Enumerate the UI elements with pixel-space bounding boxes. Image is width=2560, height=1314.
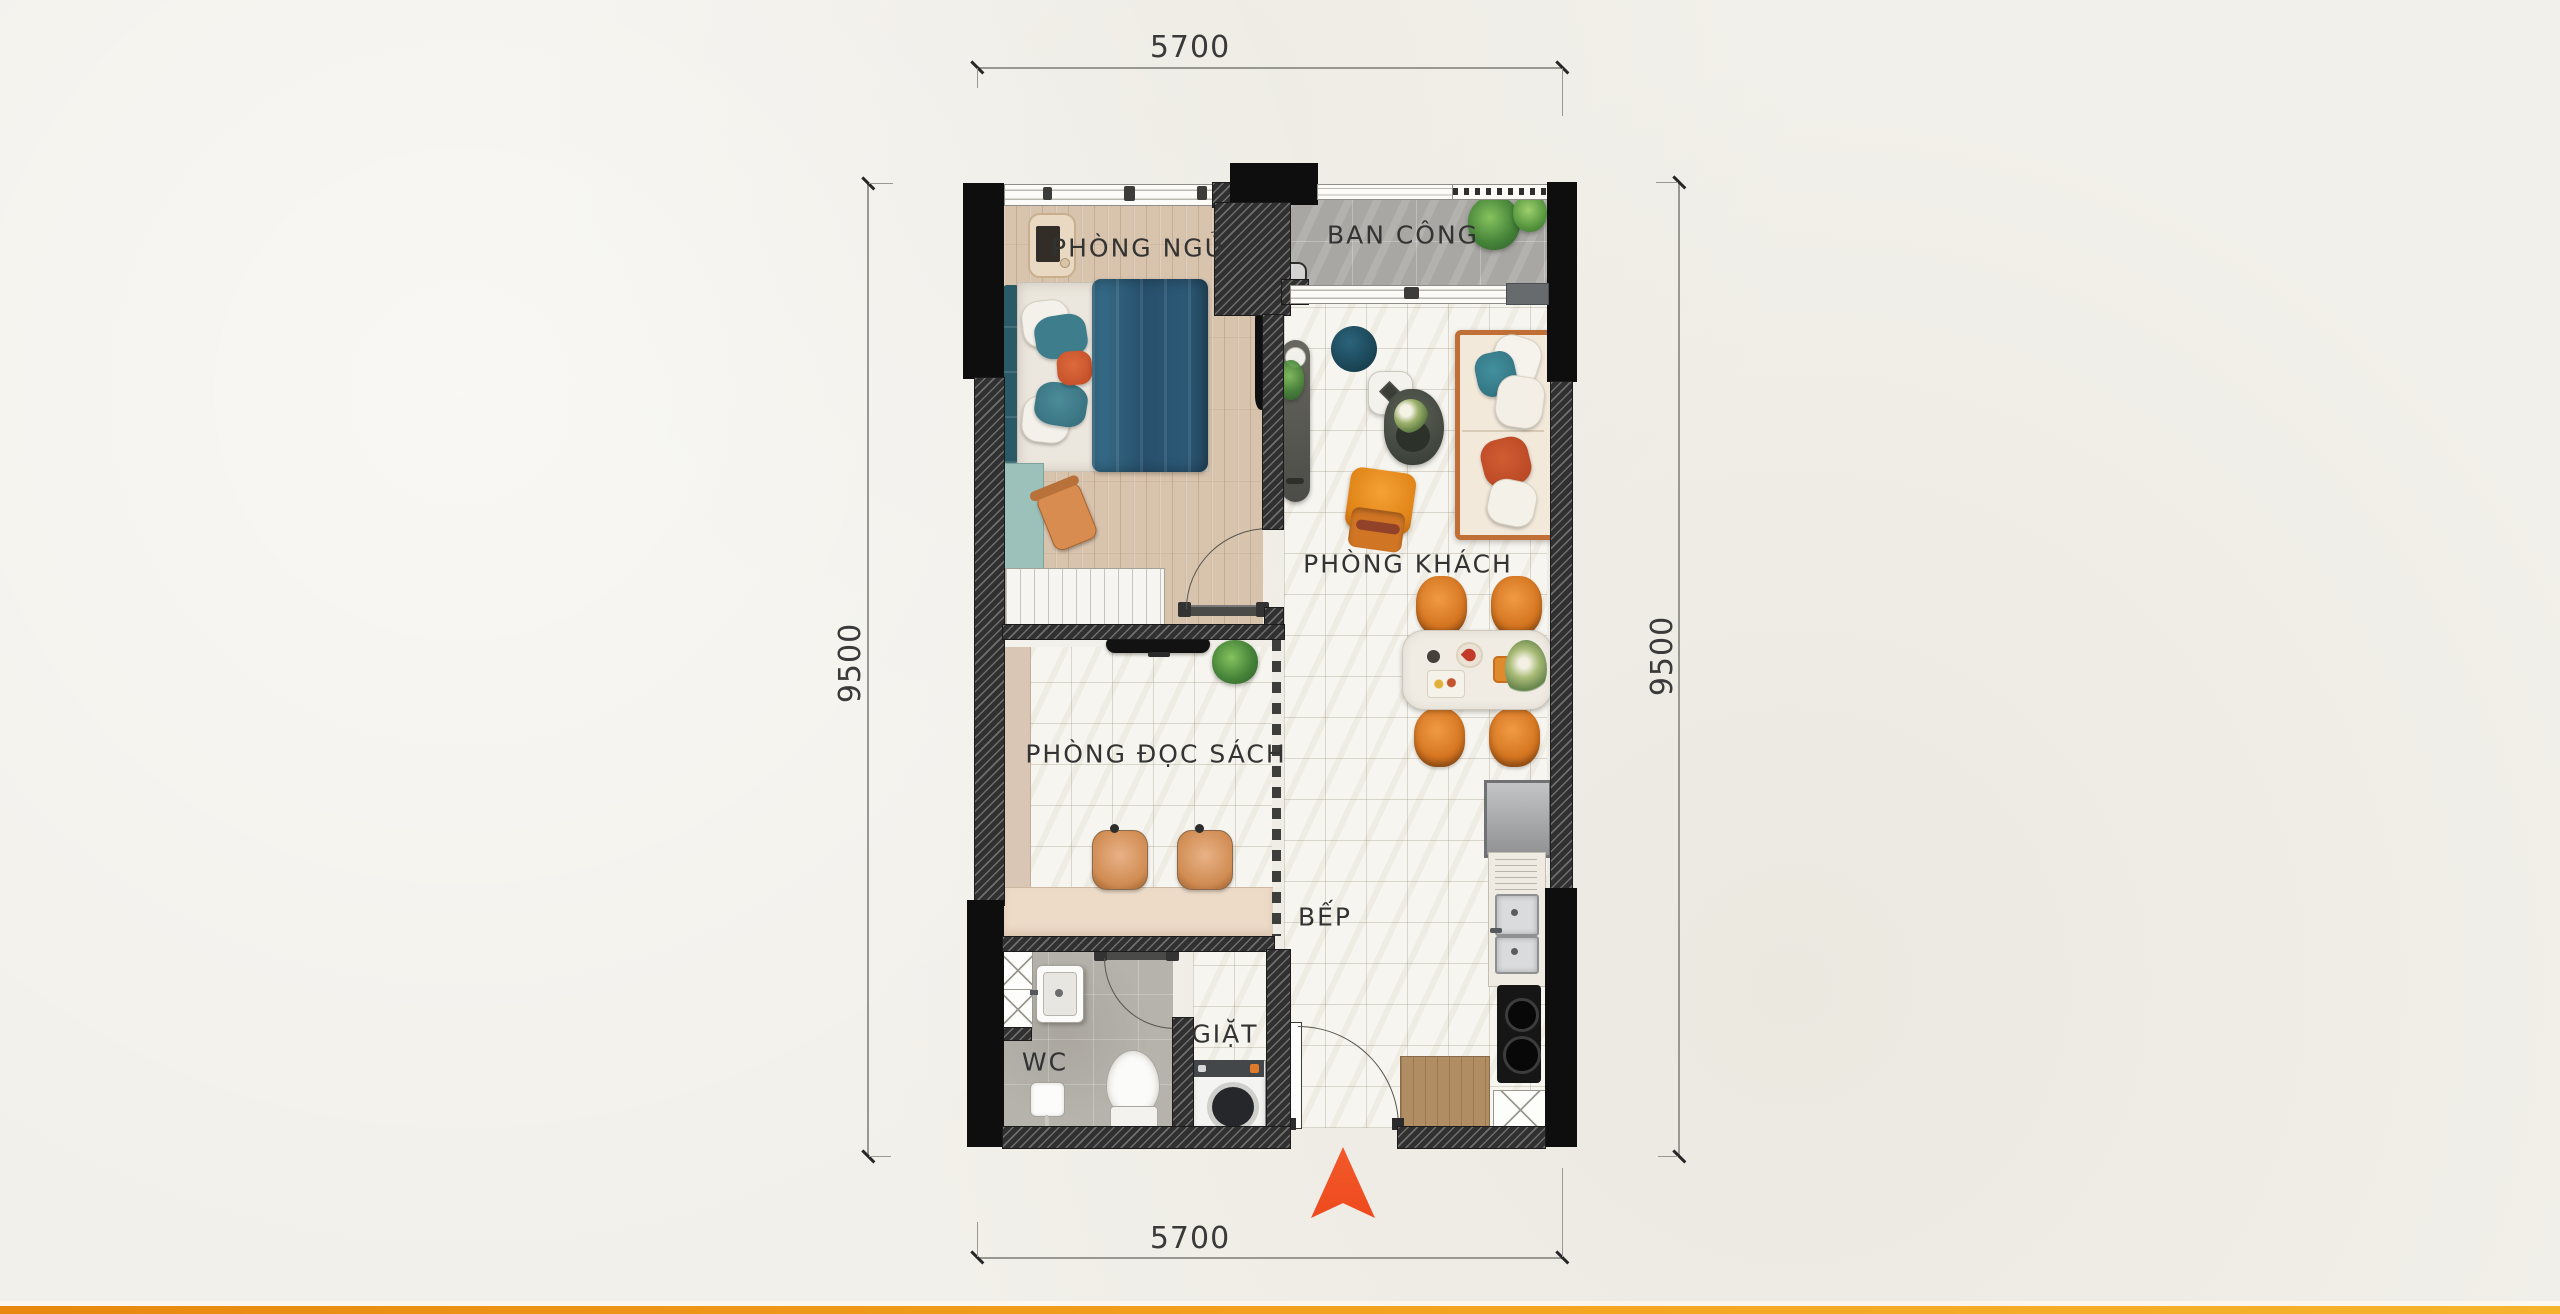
table-cup bbox=[1427, 650, 1440, 663]
shower-screen-lower bbox=[1003, 989, 1033, 1030]
dim-value-top: 5700 bbox=[1150, 33, 1230, 63]
kitchen-label: BẾP bbox=[1298, 905, 1352, 930]
kitchen-sink-2 bbox=[1495, 936, 1539, 974]
living-room-label: PHÒNG KHÁCH bbox=[1303, 552, 1513, 577]
wall-reading-bottom bbox=[1003, 937, 1274, 951]
counter-drainboard bbox=[1495, 858, 1537, 890]
sofa-cushion-seam bbox=[1462, 430, 1544, 432]
table-tray bbox=[1427, 670, 1465, 698]
dining-chair-top-left bbox=[1416, 576, 1467, 636]
wall-bedroom-balcony bbox=[1215, 203, 1290, 315]
sink-2-drain bbox=[1511, 948, 1518, 955]
wall-bottom-right bbox=[1398, 1127, 1545, 1148]
lounge-armchair bbox=[1338, 466, 1419, 560]
wall-laundry-right bbox=[1267, 950, 1290, 1130]
kitchen-lower-cabinet bbox=[1493, 1090, 1548, 1130]
dim-ext-top-right bbox=[1562, 68, 1563, 116]
dim-ext-left-top bbox=[869, 183, 893, 184]
dim-ext-bottom-right bbox=[1562, 1168, 1563, 1257]
reading-chair-left bbox=[1092, 830, 1148, 890]
console-handle bbox=[1286, 478, 1304, 484]
balcony-right-pier bbox=[1506, 283, 1549, 305]
toilet-tank bbox=[1110, 1106, 1158, 1129]
reading-room-plant bbox=[1212, 640, 1258, 684]
dim-ext-left-bottom bbox=[869, 1156, 891, 1157]
washer-door bbox=[1207, 1082, 1259, 1132]
wall-wc-laundry bbox=[1173, 1018, 1193, 1130]
bedroom-window bbox=[1004, 184, 1216, 206]
balcony-railing-left bbox=[1317, 184, 1455, 200]
dining-chair-bottom-right bbox=[1489, 708, 1540, 767]
reading-chair-right bbox=[1177, 830, 1233, 890]
wall-bedroom-living bbox=[1263, 315, 1283, 529]
dim-value-right: 9500 bbox=[1648, 616, 1678, 696]
pouf-ottoman bbox=[1331, 326, 1377, 372]
washer-power-button bbox=[1250, 1064, 1259, 1073]
sink-1-drain bbox=[1511, 909, 1518, 916]
balcony-door-clip bbox=[1404, 287, 1419, 299]
reading-chair-right-knob bbox=[1195, 824, 1204, 833]
wall-right-middle bbox=[1551, 382, 1572, 888]
wc-label: WC bbox=[1022, 1050, 1068, 1075]
wardrobe bbox=[1005, 568, 1165, 627]
balcony-label: BAN CÔNG bbox=[1327, 223, 1479, 248]
dining-chair-bottom-left bbox=[1414, 708, 1465, 767]
shower-wall-stub bbox=[1003, 1028, 1031, 1040]
bed-pillow-orange bbox=[1056, 350, 1093, 386]
window-clip-1 bbox=[1043, 187, 1052, 200]
wall-left-bottom bbox=[967, 900, 1004, 1147]
wall-left-middle bbox=[975, 378, 1004, 905]
cooktop-burner-small bbox=[1505, 998, 1539, 1032]
window-clip-2 bbox=[1124, 186, 1135, 201]
dim-line-top bbox=[977, 67, 1563, 69]
floorplan-screenshot: PHÒNG NGỦ BAN CÔNG PHÒNG KHÁCH PHÒNG ĐỌC… bbox=[0, 0, 2560, 1314]
wall-left-top bbox=[963, 183, 1004, 379]
bed-duvet-folds bbox=[1092, 279, 1208, 472]
table-flower-bouquet bbox=[1505, 640, 1547, 698]
wc-wall-box bbox=[1030, 1082, 1065, 1117]
sink-faucet bbox=[1490, 928, 1502, 933]
dim-ext-top-left bbox=[977, 68, 978, 88]
window-clip-3 bbox=[1197, 186, 1207, 200]
wall-bottom-left bbox=[1003, 1127, 1290, 1148]
coffee-table-flowers bbox=[1394, 399, 1428, 433]
balcony-sliding-door bbox=[1290, 285, 1508, 304]
cooktop-burner-large bbox=[1503, 1036, 1541, 1074]
dim-ext-right-top bbox=[1656, 182, 1678, 183]
wall-top-protrusion bbox=[1230, 163, 1318, 205]
dim-value-left: 9500 bbox=[836, 623, 866, 703]
wall-right-bottom bbox=[1545, 888, 1577, 1147]
laundry-label: GIẶT bbox=[1191, 1022, 1258, 1047]
wall-right-top bbox=[1547, 182, 1577, 382]
dim-ext-right-bottom bbox=[1658, 1156, 1678, 1157]
balcony-railing-right bbox=[1452, 184, 1550, 200]
bottom-accent-bar bbox=[0, 1306, 2560, 1314]
fridge bbox=[1484, 780, 1552, 858]
bedroom-label: PHÒNG NGỦ bbox=[1051, 236, 1225, 261]
reading-chair-left-knob bbox=[1110, 824, 1119, 833]
wc-sink-faucet bbox=[1030, 990, 1038, 995]
reading-room-dashed-partition bbox=[1272, 640, 1281, 936]
entrance-door-mat bbox=[1400, 1056, 1490, 1128]
dining-chair-top-right bbox=[1491, 576, 1542, 636]
washer-dial bbox=[1198, 1065, 1206, 1072]
shower-screen-upper bbox=[1003, 950, 1033, 991]
wall-bedroom-bottom bbox=[1003, 625, 1284, 639]
reading-room-label: PHÒNG ĐỌC SÁCH bbox=[1025, 742, 1286, 767]
wc-sink-drain bbox=[1055, 989, 1063, 997]
reading-room-desk bbox=[1003, 887, 1273, 938]
dim-ext-bottom-left bbox=[977, 1222, 978, 1257]
dim-line-bottom bbox=[977, 1257, 1563, 1259]
reading-room-tv bbox=[1106, 638, 1210, 653]
entry-direction-arrow bbox=[1311, 1147, 1375, 1218]
reading-tv-stand bbox=[1148, 652, 1170, 657]
dim-value-bottom: 5700 bbox=[1150, 1224, 1230, 1254]
